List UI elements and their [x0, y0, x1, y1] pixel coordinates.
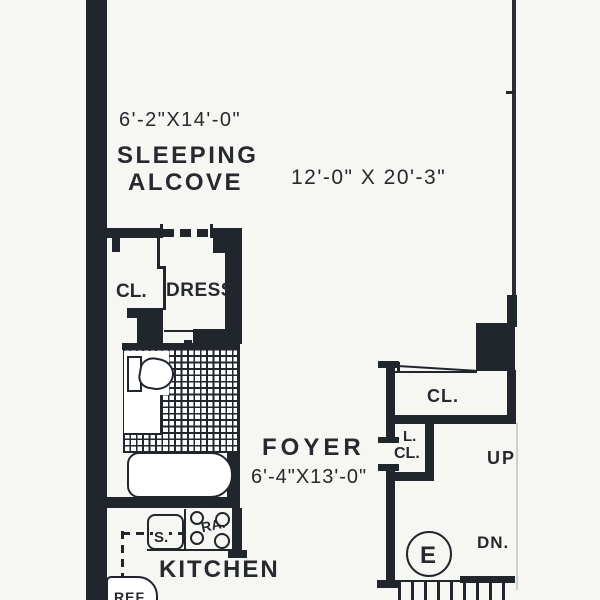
stairs-up-label: UP	[487, 448, 516, 469]
living-area-dims: 12'-0" X 20'-3"	[291, 166, 446, 190]
wall-cl-dress-divider	[157, 238, 160, 268]
door-jamb-tick	[378, 464, 399, 471]
door-jamb-tick	[378, 437, 399, 443]
stair-tread	[424, 582, 427, 600]
kitchen-name: KITCHEN	[159, 556, 280, 584]
stair-tread	[437, 582, 440, 600]
counter-edge	[147, 549, 237, 551]
foyer-dims: 6'-4"X13'-0"	[251, 466, 367, 489]
closet-door-tick	[397, 362, 400, 371]
wall-linen-closet-right	[425, 420, 434, 481]
wall-cl-stub	[112, 238, 120, 252]
bathtub	[127, 452, 233, 498]
stair-tread	[450, 582, 453, 600]
stair-tread	[411, 582, 414, 600]
wall-closet-bottom	[393, 415, 516, 424]
door-jamb-tick	[378, 361, 399, 368]
stair-tread	[463, 582, 466, 600]
ref-dashed-line	[121, 531, 124, 577]
foyer-name: FOYER	[262, 434, 365, 462]
sink-label: S.	[153, 529, 169, 546]
foyer-closet-label: CL.	[427, 386, 459, 407]
wall-bath-top	[122, 343, 240, 350]
floor-plan: S. RA. REF E 6'-2"X14'-0" SLEEPING ALCOV…	[0, 0, 600, 600]
linen-closet-label-line2: CL.	[394, 445, 420, 463]
range-burner	[214, 533, 230, 549]
wall-block	[476, 323, 515, 371]
bathroom-vanity	[124, 395, 162, 435]
refrigerator-label: REF	[114, 589, 145, 600]
wall-dress-top-corner	[213, 228, 242, 253]
stairs-down-label: DN.	[477, 533, 509, 553]
wall-foyer-right-upper	[386, 365, 395, 443]
wall-alcove-bottom	[105, 228, 163, 238]
stair-tread	[502, 582, 505, 600]
sleeping-alcove-name-line1: SLEEPING	[117, 142, 258, 170]
counter-divider	[184, 509, 186, 550]
stair-rail	[460, 576, 515, 583]
wall-right-boundary-faint	[516, 423, 518, 590]
wall-left-outer	[86, 0, 107, 600]
door-jamb-tick	[160, 224, 163, 238]
stair-tread	[489, 582, 492, 600]
wall-closet-right	[507, 370, 516, 418]
linen-closet-label-line1: L.	[403, 428, 416, 445]
wall-bath-bottom	[106, 497, 240, 508]
wall-kitchen-right	[232, 508, 242, 553]
wall-foyer-right-lower	[386, 466, 395, 588]
wall-bath-left-stub	[137, 318, 163, 346]
wall-cl-bottom	[127, 308, 163, 318]
wall-tick	[506, 91, 514, 94]
dress-door-line	[164, 330, 194, 332]
sleeping-alcove-dims: 6'-2"X14'-0"	[119, 109, 241, 132]
sleeping-alcove-name-line2: ALCOVE	[128, 169, 243, 197]
bifold-door-dashed	[163, 229, 212, 237]
stair-tread	[476, 582, 479, 600]
elevator-label: E	[420, 542, 436, 570]
closet-front-line	[393, 371, 477, 373]
dressing-label: DRESS.	[166, 280, 240, 302]
closet-label: CL.	[116, 281, 147, 303]
stair-tread	[398, 582, 401, 600]
wall-right-boundary	[512, 0, 516, 301]
